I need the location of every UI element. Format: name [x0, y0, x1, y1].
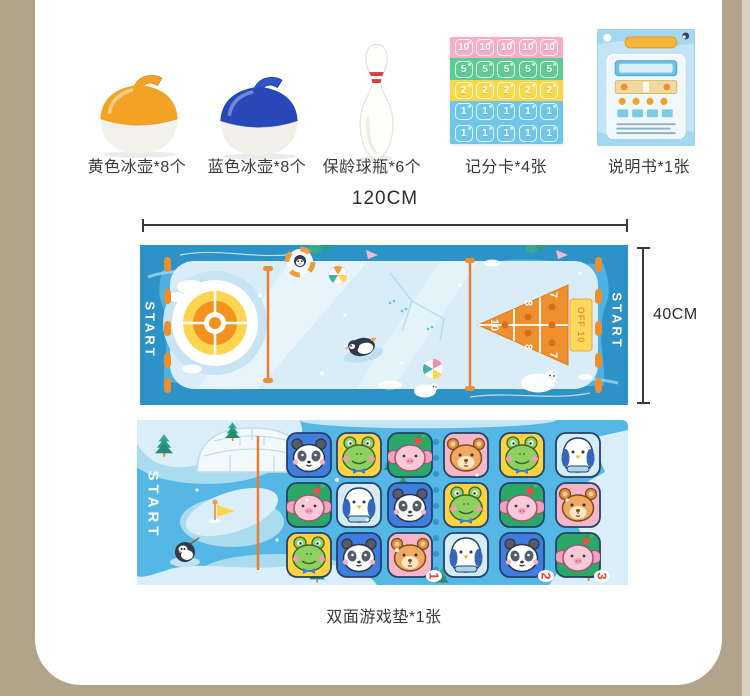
score-card-cell: 1: [455, 125, 473, 142]
height-dimension-label: 40CM: [653, 306, 698, 324]
score-card-row: 1010101010: [450, 37, 563, 58]
product-detail-image: 101010101055555222221111111111 黄色冰壶*8: [0, 0, 750, 696]
width-dimension-label: 120CM: [142, 188, 628, 210]
score-card-cell: 1: [476, 103, 494, 120]
svg-text:3: 3: [595, 572, 610, 579]
item-label: 记分卡*4张: [446, 157, 566, 179]
animal-tile-panda: [388, 483, 432, 527]
score-card-cell: 10: [476, 39, 494, 56]
animal-tile-penguin: [556, 433, 600, 477]
animal-tile-bear: [388, 533, 432, 577]
score-card-cell: 1: [540, 125, 558, 142]
svg-text:8: 8: [522, 344, 534, 350]
game-mat-back: START: [137, 420, 628, 585]
penguin-in-ring-icon: [287, 249, 313, 275]
content-panel: 101010101055555222221111111111 黄色冰壶*8: [35, 0, 722, 685]
animal-tile-bear: [556, 483, 600, 527]
animal-tile-pig: [499, 483, 545, 527]
animal-tile-frog: [500, 433, 544, 477]
score-card-cell: 2: [540, 82, 558, 99]
score-card-cell: 5: [519, 61, 537, 78]
background-edge: [742, 0, 750, 696]
start-label: START: [145, 471, 162, 540]
bowling-pin-image: [353, 42, 400, 162]
score-card-row: 11111: [450, 123, 563, 144]
height-dimension-line: [642, 247, 644, 404]
mat-caption: 双面游戏垫*1张: [140, 603, 628, 627]
animal-tile-frog: [337, 433, 381, 477]
svg-text:8: 8: [522, 300, 534, 306]
score-card-cell: 2: [519, 82, 537, 99]
animal-tile-panda: [500, 533, 544, 577]
start-label-left: START: [143, 301, 158, 358]
animal-tile-pig: [286, 483, 332, 527]
item-label: 说明书*1张: [589, 157, 709, 179]
animal-tile-panda: [287, 433, 331, 477]
score-card-row: 55555: [450, 58, 563, 79]
score-card-cell: 5: [540, 61, 558, 78]
score-card-image: 101010101055555222221111111111: [450, 37, 563, 144]
animal-tile-panda: [337, 533, 381, 577]
score-card-cell: 10: [519, 39, 537, 56]
svg-text:7: 7: [547, 352, 559, 358]
score-card-cell: 1: [519, 103, 537, 120]
animal-tile-frog: [287, 533, 331, 577]
curling-target: [163, 271, 267, 375]
score-card-cell: 1: [497, 103, 515, 120]
score-card-cell: 1: [519, 125, 537, 142]
animal-tile-penguin: [337, 483, 381, 527]
score-card-cell: 10: [497, 39, 515, 56]
yellow-curling-stone-image: [93, 70, 185, 160]
item-label: 黄色冰壶*8个: [77, 157, 197, 179]
start-label-right: START: [610, 292, 625, 349]
score-card-cell: 1: [455, 103, 473, 120]
score-card-cell: 1: [476, 125, 494, 142]
animal-tile-bear: [444, 433, 488, 477]
score-card-cell: 1: [497, 125, 515, 142]
score-card-cell: 2: [476, 82, 494, 99]
svg-text:10: 10: [488, 319, 500, 331]
animal-tile-pig: [555, 533, 601, 577]
score-card-cell: 5: [455, 61, 473, 78]
svg-text:7: 7: [547, 292, 559, 298]
dotted-path: [433, 439, 439, 573]
off-zone: OFF 10: [570, 299, 592, 351]
item-label: 保龄球瓶*6个: [302, 157, 442, 179]
beach-ball-icon: [329, 266, 347, 284]
score-card-row: 11111: [450, 101, 563, 122]
score-card-row: 22222: [450, 80, 563, 101]
item-label: 蓝色冰壶*8个: [197, 157, 317, 179]
svg-text:1: 1: [427, 572, 442, 579]
score-card-cell: 5: [497, 61, 515, 78]
width-dimension-line: [142, 224, 628, 226]
svg-text:2: 2: [539, 572, 554, 579]
score-card-cell: 2: [455, 82, 473, 99]
animal-tile-penguin: [444, 533, 488, 577]
animal-tile-frog: [444, 483, 488, 527]
score-card-cell: 10: [455, 39, 473, 56]
score-card-cell: 2: [497, 82, 515, 99]
svg-text:OFF 10: OFF 10: [576, 307, 586, 344]
blue-curling-stone-image: [213, 72, 305, 162]
score-card-cell: 1: [540, 103, 558, 120]
manual-image: [597, 29, 695, 146]
score-card-cell: 5: [476, 61, 494, 78]
score-card-cell: 10: [540, 39, 558, 56]
game-mat-front: START START: [140, 245, 628, 405]
animal-tile-pig: [387, 433, 433, 477]
